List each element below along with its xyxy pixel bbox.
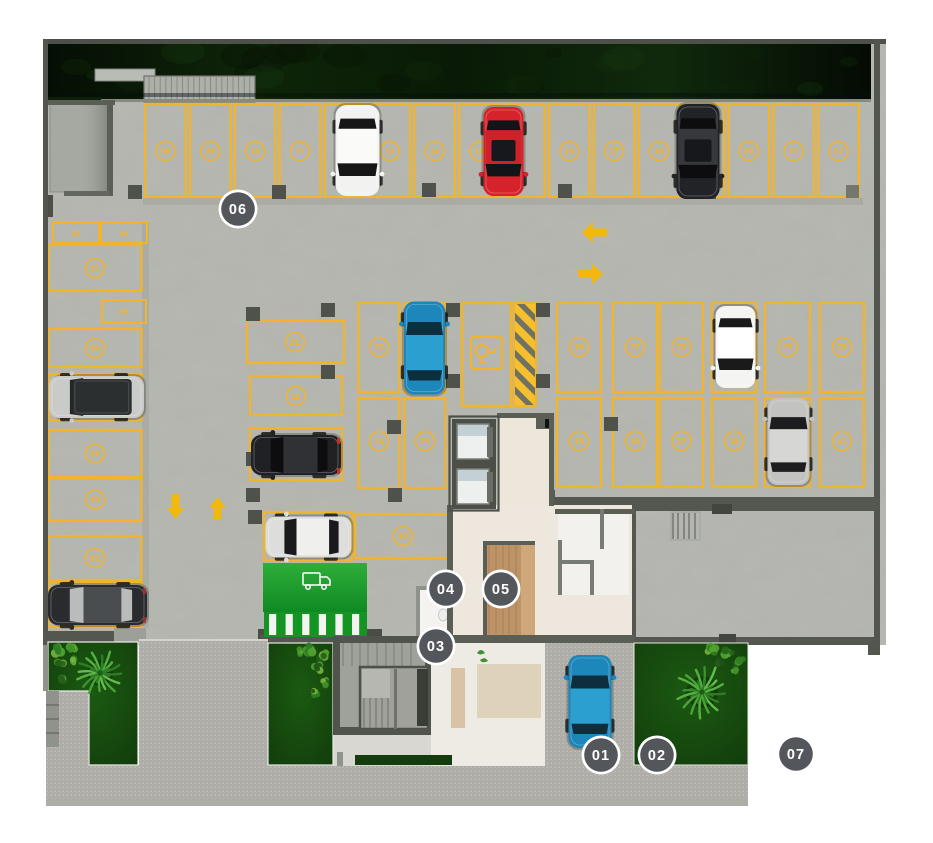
svg-text:09: 09 (206, 146, 216, 156)
svg-text:11: 11 (296, 146, 305, 156)
svg-text:03: 03 (427, 639, 445, 655)
svg-text:28: 28 (677, 342, 687, 352)
svg-text:20: 20 (744, 146, 754, 156)
svg-text:08: 08 (161, 146, 171, 156)
svg-text:22: 22 (834, 146, 844, 156)
svg-text:07: 07 (787, 747, 805, 763)
svg-text:26: 26 (574, 342, 584, 352)
svg-text:17: 17 (609, 146, 619, 156)
svg-text:14: 14 (430, 146, 440, 156)
svg-text:38: 38 (729, 436, 739, 446)
svg-text:21: 21 (290, 337, 300, 347)
svg-text:36: 36 (630, 436, 640, 446)
svg-text:16: 16 (565, 146, 575, 156)
svg-text:24: 24 (374, 436, 384, 446)
svg-text:18: 18 (654, 146, 664, 156)
svg-text:06: 06 (90, 343, 100, 353)
svg-text:02: 02 (648, 748, 666, 764)
svg-text:01: 01 (592, 748, 610, 764)
svg-text:M3: M3 (119, 309, 128, 316)
svg-text:23: 23 (374, 342, 384, 352)
svg-text:13: 13 (385, 146, 395, 156)
svg-text:40: 40 (398, 531, 408, 541)
svg-text:21: 21 (789, 146, 799, 156)
svg-text:06: 06 (229, 202, 247, 218)
svg-text:02: 02 (90, 553, 100, 563)
svg-text:37: 37 (677, 436, 687, 446)
svg-text:25: 25 (420, 436, 430, 446)
svg-text:03: 03 (90, 495, 100, 505)
svg-text:M2: M2 (119, 231, 128, 238)
svg-text:07: 07 (90, 263, 100, 273)
svg-text:04: 04 (437, 582, 455, 598)
svg-text:29: 29 (783, 342, 793, 352)
svg-text:35: 35 (574, 436, 584, 446)
svg-text:10: 10 (250, 146, 260, 156)
svg-text:33: 33 (837, 342, 847, 352)
svg-text:04: 04 (90, 449, 100, 459)
svg-text:M1: M1 (71, 231, 80, 238)
svg-text:05: 05 (492, 582, 510, 598)
svg-text:41: 41 (837, 436, 847, 446)
svg-text:27: 27 (630, 342, 640, 352)
svg-text:22: 22 (291, 391, 301, 401)
